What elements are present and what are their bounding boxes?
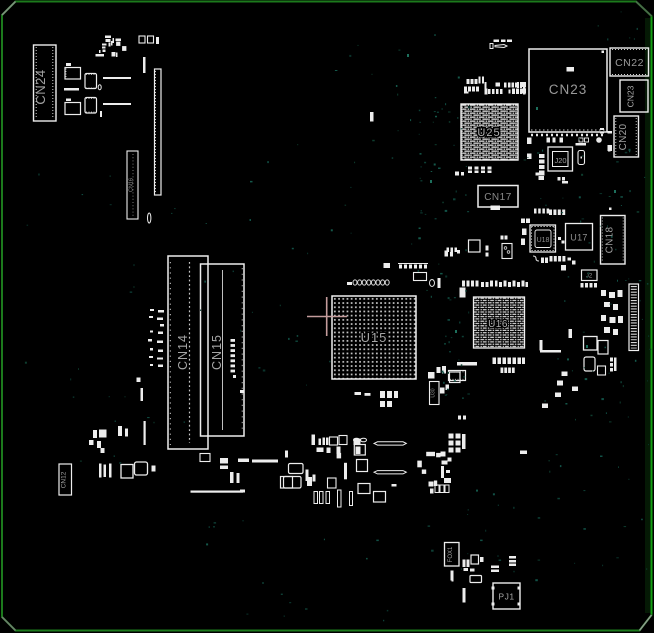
svg-text:U17: U17: [570, 233, 587, 243]
svg-text:U18: U18: [537, 237, 550, 244]
svg-text:CN18: CN18: [605, 226, 616, 253]
svg-text:CN17: CN17: [484, 192, 512, 203]
svg-text:CN16: CN16: [129, 178, 135, 192]
svg-text:J20: J20: [554, 156, 566, 165]
svg-text:U16: U16: [488, 319, 508, 330]
svg-text:CN22: CN22: [615, 57, 644, 69]
svg-text:PJ1: PJ1: [498, 592, 514, 602]
svg-text:FOX1: FOX1: [448, 546, 454, 562]
svg-text:CN24: CN24: [33, 69, 48, 104]
svg-text:CN23: CN23: [626, 85, 636, 107]
svg-text:CN23: CN23: [549, 82, 588, 97]
svg-text:CN20: CN20: [618, 123, 629, 150]
svg-text:U15: U15: [361, 330, 388, 345]
svg-text:CN12: CN12: [61, 471, 68, 488]
svg-text:CN15: CN15: [210, 334, 224, 370]
svg-text:U25: U25: [477, 127, 500, 139]
svg-text:U30: U30: [431, 388, 437, 397]
svg-text:CN14: CN14: [176, 334, 190, 370]
